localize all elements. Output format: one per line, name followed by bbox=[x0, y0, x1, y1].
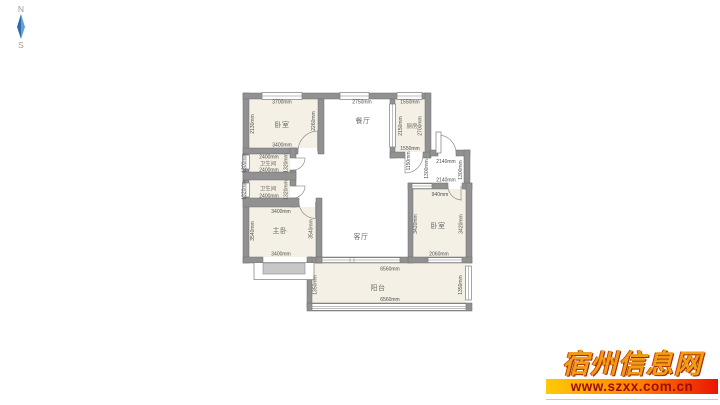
bay-window bbox=[254, 263, 314, 280]
compass-needle-icon bbox=[17, 14, 21, 39]
dim-balcony-bottom: 6560mm bbox=[380, 297, 399, 303]
compass-needle-icon bbox=[21, 14, 25, 39]
dim-balcony-left: 1350mm bbox=[313, 275, 319, 294]
dim-bath-lower-bottom: 2400mm bbox=[259, 194, 278, 200]
dim-master-top: 3400mm bbox=[271, 209, 290, 215]
dim-kitchen-top: 1550mm bbox=[400, 100, 419, 106]
dim-bedroom-tl-left: 2130mm bbox=[250, 114, 256, 133]
dim-kitchen-left: 2150mm bbox=[398, 116, 404, 135]
dim-bath-upper-right: 1320mm bbox=[284, 153, 290, 172]
watermark-divider bbox=[546, 399, 718, 400]
dim-bath-upper-left: 1300mm bbox=[242, 153, 248, 172]
dim-kitchen-right: 2700mm bbox=[418, 116, 424, 135]
watermark-url: www.szxx.com.cn bbox=[571, 379, 694, 394]
dim-dining-top: 2750mm bbox=[352, 100, 371, 106]
dim-bath-lower-left: 1320mm bbox=[242, 180, 248, 199]
dim-entry-top: 2140mm bbox=[436, 159, 455, 165]
dim-master-right: 3540mm bbox=[309, 219, 315, 238]
dim-bedroom-right-right: 3420mm bbox=[459, 214, 465, 233]
dim-bath-upper-bottom: 2400mm bbox=[259, 168, 278, 174]
dim-entry-right: 1300mm bbox=[458, 160, 464, 179]
floor-plan: N S bbox=[0, 0, 720, 405]
dim-entry-bottom: 2140mm bbox=[436, 178, 455, 184]
dim-bedroom-tl-bottom: 3400mm bbox=[272, 143, 291, 149]
watermark-url-bar: www.szxx.com.cn bbox=[546, 379, 718, 394]
label-living: 客厅 bbox=[354, 232, 369, 241]
dim-balcony-top: 6560mm bbox=[380, 267, 399, 273]
dim-master-left: 3540mm bbox=[250, 221, 256, 240]
dim-bedroom-tl-top: 3700mm bbox=[272, 100, 291, 106]
dim-bedroom-tl-right: 2260mm bbox=[311, 111, 317, 130]
watermark-site-name: 宿州信息网 bbox=[546, 350, 718, 378]
dim-bath-upper-top: 2400mm bbox=[259, 155, 278, 161]
label-bedroom-top-left: 卧室 bbox=[275, 120, 290, 129]
dim-bedroom-right-top: 940mm bbox=[432, 192, 449, 198]
dim-bedroom-right-bottom: 2060mm bbox=[429, 252, 448, 258]
label-bath-lower: 卫生间 bbox=[260, 185, 277, 193]
label-master-bedroom: 主卧 bbox=[273, 226, 288, 235]
label-dining: 餐厅 bbox=[356, 116, 371, 125]
dim-kitchen-bottom: 1550mm bbox=[400, 146, 419, 152]
dim-entry-left: 1300mm bbox=[424, 159, 430, 178]
dim-bath-lower-right: 1320mm bbox=[284, 180, 290, 199]
page: N S bbox=[0, 0, 720, 405]
dim-balcony-right: 1350mm bbox=[458, 275, 464, 294]
label-kitchen: 厨房 bbox=[406, 122, 418, 130]
label-bath-upper: 卫生间 bbox=[260, 160, 277, 168]
label-balcony: 阳台 bbox=[371, 283, 386, 292]
compass-south-label: S bbox=[18, 40, 24, 50]
dim-bedroom-right-left: 3420mm bbox=[413, 214, 419, 233]
dim-entry-wall: 1150mm bbox=[406, 151, 412, 170]
label-bedroom-right: 卧室 bbox=[431, 221, 446, 230]
compass-north-label: N bbox=[18, 4, 24, 14]
dim-master-bottom: 3400mm bbox=[271, 252, 290, 258]
watermark: 宿州信息网 www.szxx.com.cn bbox=[546, 350, 718, 400]
compass: N S bbox=[17, 4, 25, 50]
